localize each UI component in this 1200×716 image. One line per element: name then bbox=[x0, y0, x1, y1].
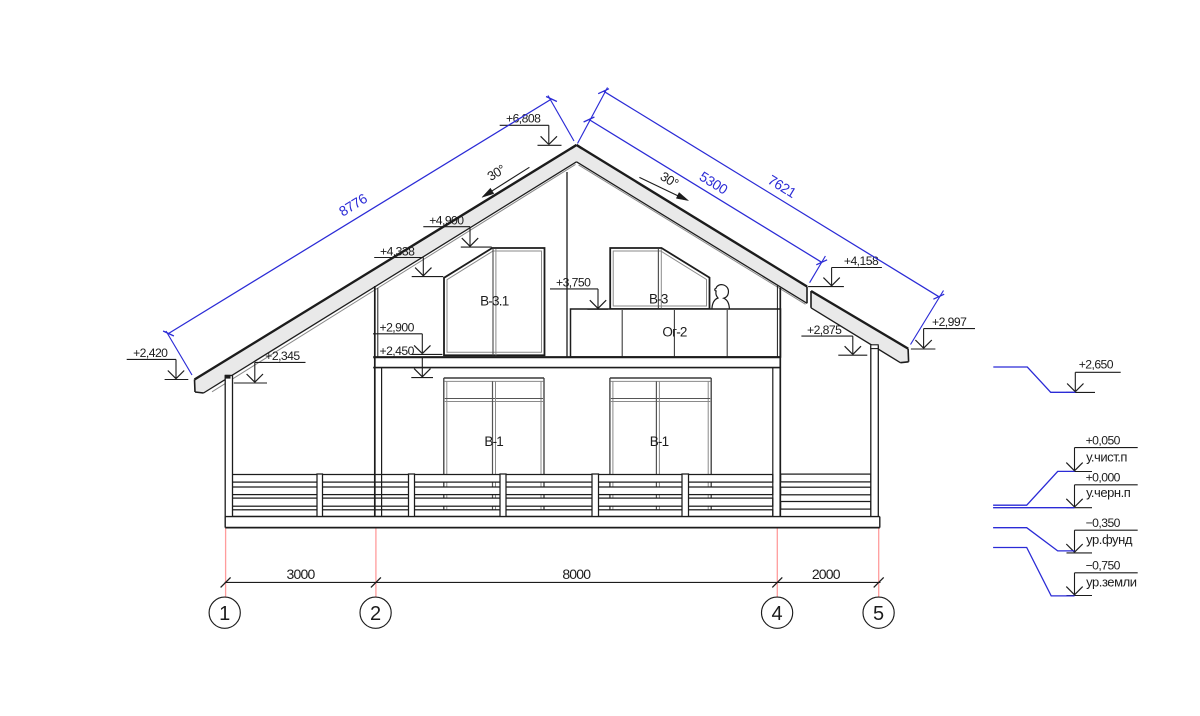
svg-text:+4,338: +4,338 bbox=[380, 245, 415, 259]
svg-text:у.чист.п: у.чист.п bbox=[1086, 450, 1127, 465]
svg-text:+2,900: +2,900 bbox=[380, 320, 415, 334]
svg-text:3000: 3000 bbox=[287, 566, 316, 582]
svg-text:−0,350: −0,350 bbox=[1086, 516, 1121, 530]
svg-text:+2,650: +2,650 bbox=[1079, 357, 1114, 371]
svg-text:В-1: В-1 bbox=[650, 434, 669, 449]
svg-text:2: 2 bbox=[370, 603, 381, 625]
svg-text:у.черн.п: у.черн.п bbox=[1086, 485, 1131, 500]
svg-text:В-1: В-1 bbox=[484, 434, 503, 449]
svg-text:+2,450: +2,450 bbox=[380, 344, 415, 358]
svg-text:4: 4 bbox=[772, 603, 783, 625]
svg-text:ур.земли: ур.земли bbox=[1086, 574, 1137, 589]
svg-text:В-3.1: В-3.1 bbox=[480, 294, 509, 309]
svg-text:5: 5 bbox=[873, 603, 884, 625]
svg-text:−0,750: −0,750 bbox=[1086, 559, 1121, 573]
svg-text:+2,875: +2,875 bbox=[807, 323, 842, 337]
svg-text:+2,345: +2,345 bbox=[265, 349, 300, 363]
svg-text:+0,000: +0,000 bbox=[1086, 471, 1121, 485]
svg-text:+4,900: +4,900 bbox=[429, 214, 464, 228]
svg-text:+2,997: +2,997 bbox=[932, 315, 967, 329]
svg-text:1: 1 bbox=[219, 603, 230, 625]
svg-text:8000: 8000 bbox=[562, 566, 591, 582]
svg-text:+4,158: +4,158 bbox=[844, 254, 879, 268]
svg-text:Ог-2: Ог-2 bbox=[662, 324, 687, 339]
svg-text:+0,050: +0,050 bbox=[1086, 433, 1121, 447]
svg-text:+2,420: +2,420 bbox=[133, 346, 168, 360]
svg-text:+3,750: +3,750 bbox=[556, 276, 591, 290]
svg-text:ур.фунд: ур.фунд bbox=[1086, 532, 1133, 547]
svg-text:2000: 2000 bbox=[812, 566, 841, 582]
svg-text:В-3: В-3 bbox=[649, 292, 668, 307]
